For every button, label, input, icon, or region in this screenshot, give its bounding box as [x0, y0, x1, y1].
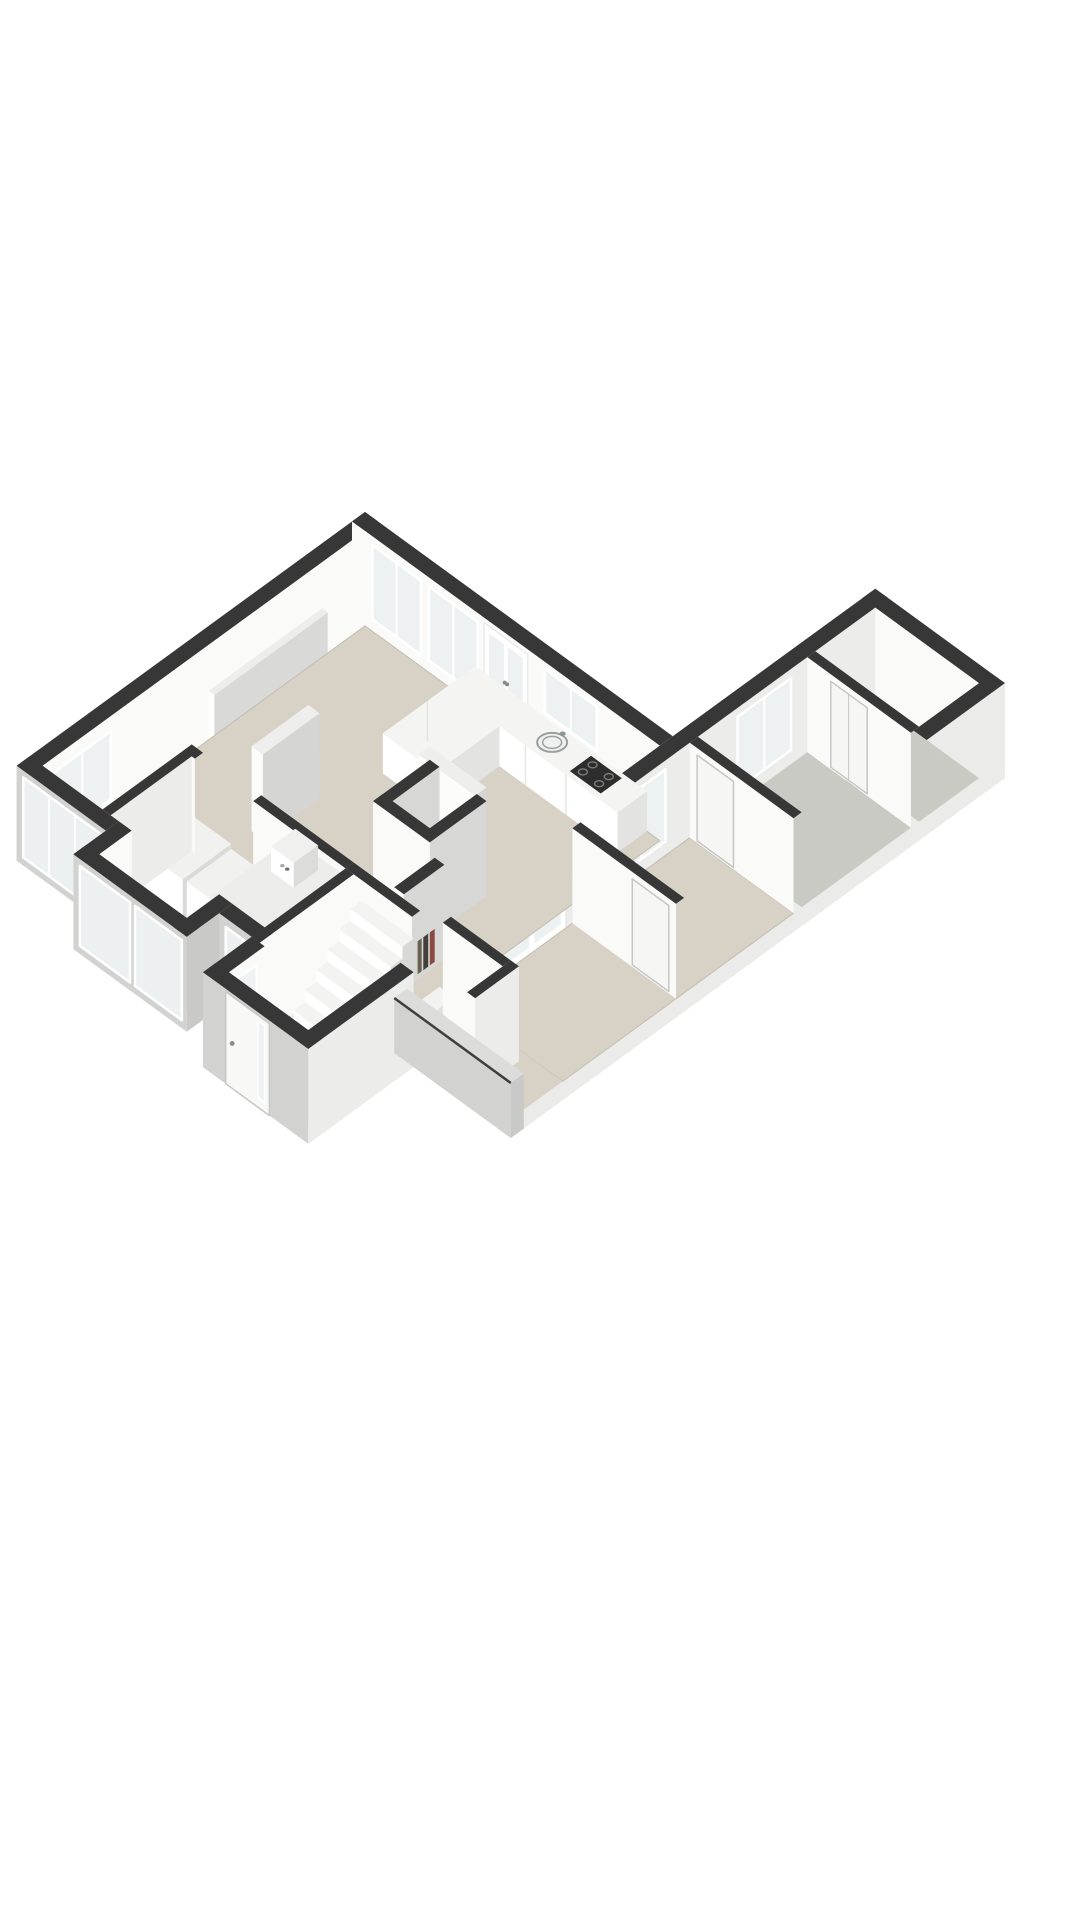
- kitchen-faucet-icon: [560, 732, 566, 736]
- book-tan-icon: [418, 938, 422, 974]
- boiler-vent-2-icon: [285, 868, 289, 871]
- front-door-glass-icon: [258, 1021, 265, 1102]
- book-dark-icon: [423, 934, 428, 971]
- floorplan-3d-render: [0, 0, 1080, 1920]
- book-red-icon: [430, 929, 435, 966]
- kitchen-sink-basin-icon: [543, 736, 562, 748]
- wing-south-wall-end: [511, 1074, 524, 1138]
- front-door-handle-icon: [230, 1041, 235, 1046]
- floorplan-page: [0, 0, 1080, 1920]
- ne-door-handle-2-icon: [505, 682, 509, 686]
- boiler-vent-icon: [280, 864, 284, 867]
